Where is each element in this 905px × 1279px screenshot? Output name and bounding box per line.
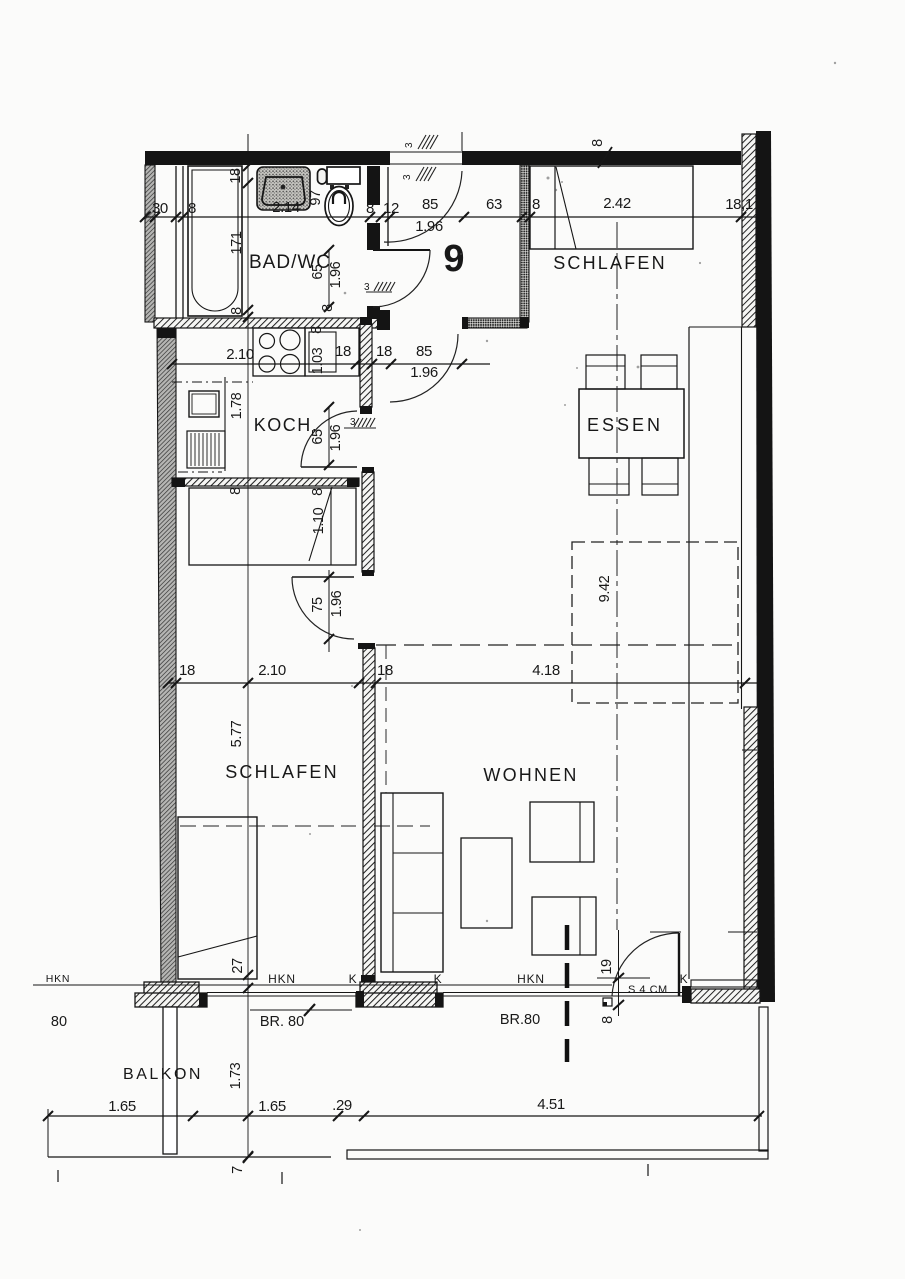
svg-text:KOCH.: KOCH. [254,415,319,435]
svg-text:8: 8 [229,307,245,315]
svg-text:97: 97 [308,190,324,206]
svg-text:171: 171 [229,231,245,254]
svg-text:HKN: HKN [517,972,545,986]
svg-text:1.78: 1.78 [229,392,245,419]
svg-text:1.65: 1.65 [108,1098,136,1115]
svg-text:8: 8 [309,326,325,334]
svg-text:8: 8 [310,488,326,496]
svg-text:1.96: 1.96 [415,218,443,235]
svg-text:8: 8 [590,139,606,147]
svg-text:1.10: 1.10 [311,507,327,534]
svg-text:K: K [349,972,358,986]
svg-text:8: 8 [532,196,540,213]
svg-text:2.14: 2.14 [272,199,300,216]
svg-text:5.77: 5.77 [229,720,245,747]
svg-text:8: 8 [228,487,244,495]
svg-text:1.65: 1.65 [258,1098,286,1115]
svg-text:75: 75 [310,597,326,613]
svg-text:1.73: 1.73 [228,1062,244,1089]
svg-text:S 4 CM: S 4 CM [628,984,668,996]
svg-text:SCHLAFEN: SCHLAFEN [225,762,339,782]
svg-text:2.10: 2.10 [258,662,286,679]
svg-text:1.96: 1.96 [328,424,344,451]
svg-text:4.18: 4.18 [532,662,560,679]
svg-text:3: 3 [402,174,413,180]
svg-text:80: 80 [51,1014,67,1030]
svg-text:ESSEN: ESSEN [587,415,663,435]
svg-text:18: 18 [376,343,392,360]
svg-text:4.51: 4.51 [537,1096,565,1113]
svg-text:9.42: 9.42 [597,575,613,602]
svg-text:BALKON: BALKON [123,1066,203,1083]
svg-text:1.03: 1.03 [310,347,326,374]
svg-text:18: 18 [335,343,351,360]
svg-text:WOHNEN: WOHNEN [483,765,578,785]
svg-text:8: 8 [320,304,336,312]
svg-text:HKN: HKN [268,972,296,986]
svg-text:1.96: 1.96 [329,590,345,617]
svg-text:1.96: 1.96 [410,364,438,381]
svg-text:12: 12 [383,200,399,217]
svg-text:18: 18 [228,168,244,184]
svg-text:18,1: 18,1 [725,196,753,213]
svg-text:65: 65 [310,429,326,445]
svg-text:2.42: 2.42 [603,195,631,212]
svg-text:85: 85 [416,343,432,360]
svg-text:65: 65 [310,264,326,280]
svg-text:18: 18 [377,662,393,679]
svg-text:HKN: HKN [46,973,71,985]
svg-text:18: 18 [179,662,195,679]
svg-text:7: 7 [230,1166,246,1174]
svg-text:19: 19 [599,959,615,975]
svg-text:3: 3 [350,417,356,428]
svg-text:85: 85 [422,196,438,213]
svg-text:8: 8 [600,1016,616,1024]
svg-text:.30: .30 [148,200,168,217]
svg-text:9: 9 [443,238,464,280]
svg-text:BR.80: BR.80 [500,1012,540,1028]
svg-text:K: K [680,972,689,986]
svg-text:K: K [434,972,443,986]
svg-text:3: 3 [404,142,415,148]
svg-text:1.96: 1.96 [328,261,344,288]
svg-text:SCHLAFEN: SCHLAFEN [553,253,667,273]
svg-text:8: 8 [366,200,374,217]
svg-text:27: 27 [230,958,246,974]
svg-text:63: 63 [486,196,502,213]
svg-text:8: 8 [188,200,196,217]
svg-text:.29: .29 [332,1097,352,1114]
svg-text:2.10: 2.10 [226,346,254,363]
svg-text:BR. 80: BR. 80 [260,1014,304,1030]
svg-text:3: 3 [364,282,370,293]
